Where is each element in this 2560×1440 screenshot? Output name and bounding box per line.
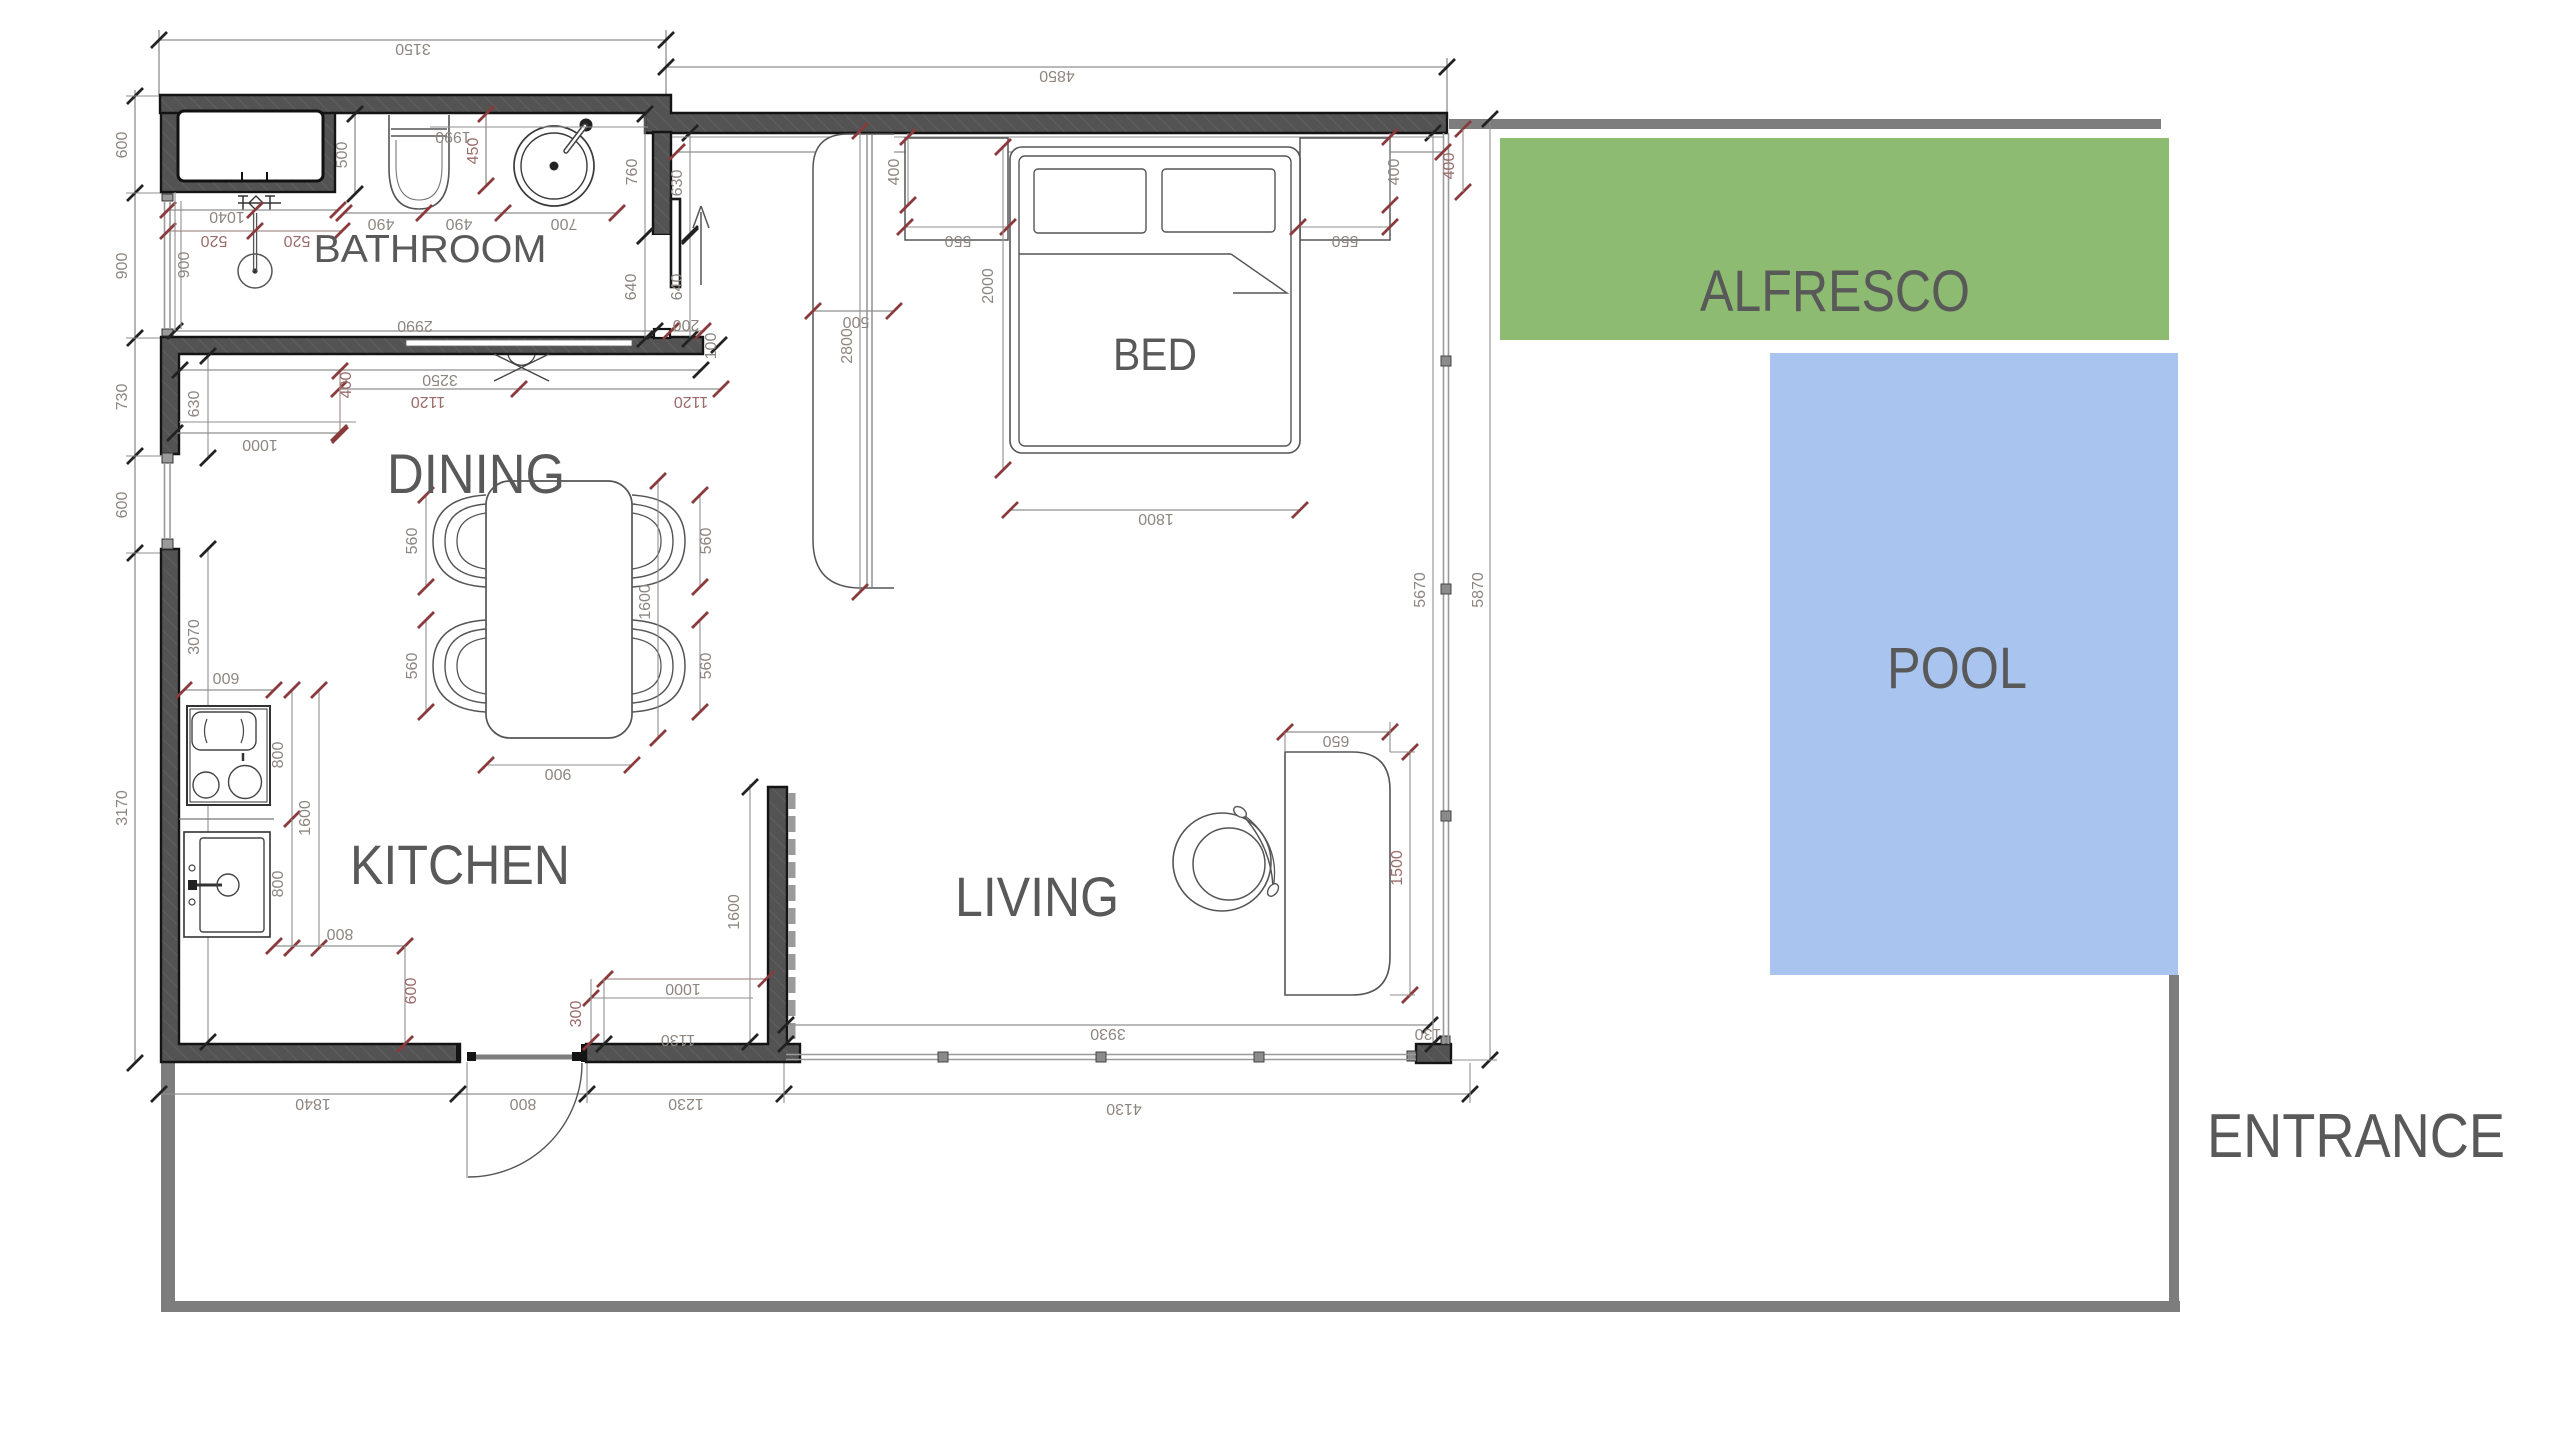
svg-text:1600: 1600 (297, 800, 314, 836)
svg-text:1800: 1800 (1138, 510, 1174, 527)
svg-text:3170: 3170 (114, 790, 131, 826)
svg-text:LIVING: LIVING (955, 865, 1119, 928)
svg-text:560: 560 (404, 528, 421, 555)
svg-text:550: 550 (1332, 232, 1359, 249)
svg-text:400: 400 (1386, 159, 1403, 186)
svg-text:1120: 1120 (674, 393, 709, 410)
svg-text:640: 640 (669, 274, 686, 301)
svg-text:760: 760 (624, 159, 641, 186)
svg-text:BED: BED (1113, 329, 1197, 380)
svg-text:600: 600 (114, 492, 131, 519)
svg-text:DINING: DINING (387, 442, 565, 505)
svg-text:3070: 3070 (186, 619, 203, 655)
svg-text:3930: 3930 (1090, 1025, 1126, 1042)
svg-text:2990: 2990 (397, 317, 433, 334)
svg-text:4850: 4850 (1039, 67, 1075, 84)
svg-text:1500: 1500 (1389, 850, 1406, 886)
svg-text:800: 800 (270, 742, 287, 769)
svg-text:520: 520 (284, 232, 311, 249)
svg-text:400: 400 (886, 159, 903, 186)
svg-text:1130: 1130 (661, 1031, 696, 1048)
svg-text:900: 900 (176, 252, 193, 279)
svg-text:KITCHEN: KITCHEN (350, 833, 570, 896)
svg-text:ENTRANCE: ENTRANCE (2207, 1102, 2505, 1171)
svg-text:800: 800 (327, 925, 354, 942)
svg-text:2800: 2800 (839, 328, 856, 364)
svg-text:4130: 4130 (1106, 1100, 1142, 1117)
svg-text:1000: 1000 (665, 980, 701, 997)
svg-text:560: 560 (698, 528, 715, 555)
svg-text:640: 640 (623, 274, 640, 301)
svg-text:1000: 1000 (242, 436, 278, 453)
svg-text:300: 300 (568, 1001, 585, 1028)
svg-text:400: 400 (338, 372, 355, 399)
svg-text:5870: 5870 (1470, 572, 1487, 608)
svg-text:630: 630 (669, 170, 686, 197)
svg-text:500: 500 (334, 142, 351, 169)
svg-text:1600: 1600 (726, 894, 743, 930)
svg-text:900: 900 (545, 765, 572, 782)
svg-text:100: 100 (703, 333, 720, 360)
svg-text:500: 500 (843, 313, 870, 330)
svg-text:600: 600 (213, 669, 240, 686)
svg-text:1990: 1990 (435, 128, 471, 145)
svg-text:550: 550 (945, 232, 972, 249)
svg-text:ALFRESCO: ALFRESCO (1700, 259, 1970, 324)
svg-text:630: 630 (186, 391, 203, 418)
svg-text:700: 700 (551, 215, 578, 232)
svg-text:1120: 1120 (411, 393, 446, 410)
svg-text:3150: 3150 (395, 40, 431, 57)
svg-text:200: 200 (673, 316, 700, 333)
svg-text:2000: 2000 (980, 268, 997, 304)
svg-text:1840: 1840 (295, 1095, 331, 1112)
svg-text:800: 800 (510, 1095, 537, 1112)
svg-text:POOL: POOL (1887, 636, 2027, 701)
svg-text:800: 800 (270, 871, 287, 898)
svg-text:BATHROOM: BATHROOM (314, 228, 547, 271)
svg-text:400: 400 (1441, 153, 1458, 180)
svg-text:600: 600 (403, 978, 420, 1005)
svg-text:560: 560 (698, 653, 715, 680)
svg-text:1040: 1040 (209, 208, 245, 225)
svg-text:600: 600 (114, 132, 131, 159)
svg-text:5670: 5670 (1412, 572, 1429, 608)
svg-text:1600: 1600 (637, 584, 654, 620)
svg-text:730: 730 (114, 384, 131, 411)
svg-text:650: 650 (1323, 732, 1350, 749)
svg-text:520: 520 (201, 232, 228, 249)
svg-text:560: 560 (404, 653, 421, 680)
svg-text:3250: 3250 (422, 371, 458, 388)
svg-text:900: 900 (114, 253, 131, 280)
svg-text:1230: 1230 (668, 1095, 704, 1112)
